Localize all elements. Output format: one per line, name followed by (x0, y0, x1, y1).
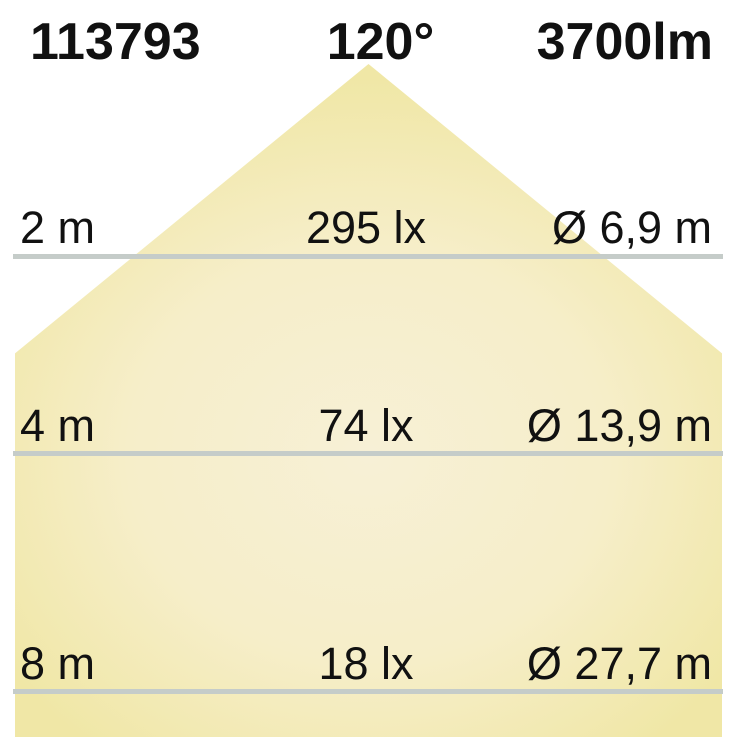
distance-label: 4 m (20, 403, 318, 449)
illuminance-label: 74 lx (318, 403, 413, 449)
distance-line-4m (13, 451, 723, 456)
measurement-row-4m: 4 m 74 lx Ø 13,9 m (0, 403, 737, 449)
light-distribution-diagram: 113793 120° 3700lm 2 m 295 lx Ø 6,9 m 4 … (0, 0, 737, 737)
illuminance-label: 295 lx (306, 205, 426, 251)
article-number: 113793 (30, 16, 318, 68)
illuminance-label: 18 lx (318, 641, 413, 687)
diameter-label: Ø 6,9 m (426, 205, 712, 251)
diameter-label: Ø 27,7 m (414, 641, 712, 687)
luminous-flux: 3700lm (425, 16, 713, 68)
distance-label: 8 m (20, 641, 318, 687)
distance-label: 2 m (20, 205, 306, 251)
diameter-label: Ø 13,9 m (414, 403, 712, 449)
distance-line-2m (13, 254, 723, 259)
measurement-row-8m: 8 m 18 lx Ø 27,7 m (0, 641, 737, 687)
distance-line-8m (13, 689, 723, 694)
measurement-row-2m: 2 m 295 lx Ø 6,9 m (0, 205, 737, 251)
beam-angle: 120° (327, 16, 435, 68)
header-row: 113793 120° 3700lm (0, 16, 737, 72)
